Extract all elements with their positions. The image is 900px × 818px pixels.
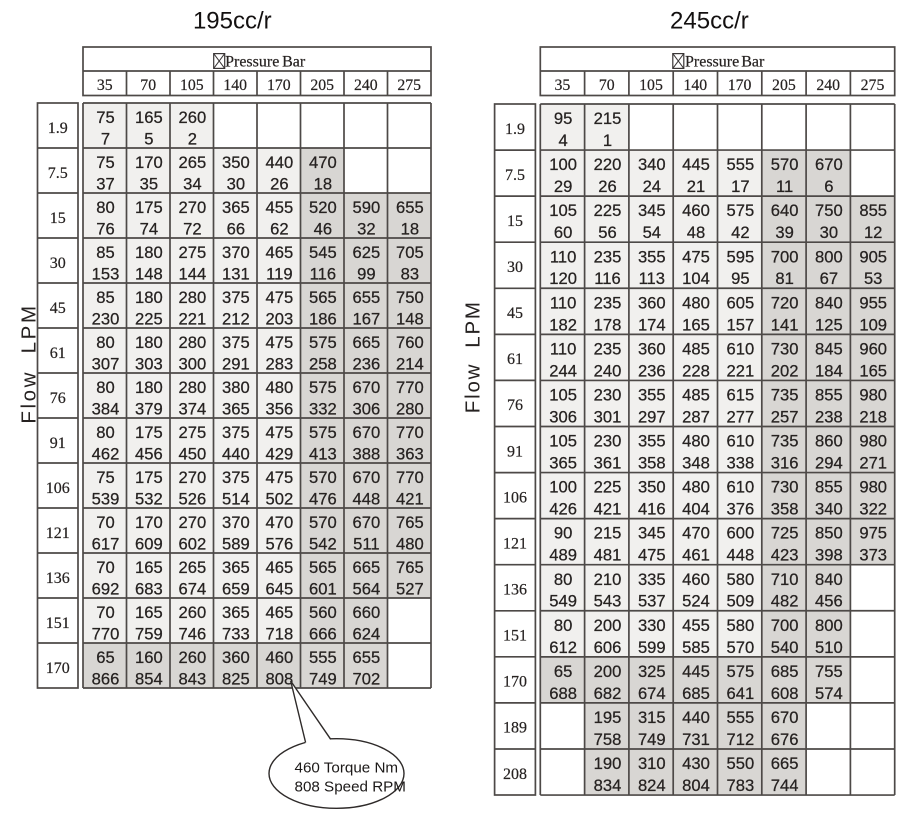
svg-text:365: 365 (549, 454, 577, 473)
svg-text:674: 674 (638, 684, 666, 703)
svg-text:840: 840 (815, 293, 843, 312)
svg-text:35: 35 (97, 77, 113, 94)
svg-text:960: 960 (859, 340, 887, 359)
svg-text:665: 665 (353, 558, 381, 577)
svg-text:280: 280 (179, 378, 207, 397)
svg-text:361: 361 (594, 454, 622, 473)
svg-text:800: 800 (815, 616, 843, 635)
svg-text:375: 375 (222, 423, 250, 442)
svg-text:178: 178 (594, 315, 622, 334)
svg-text:450: 450 (179, 445, 207, 464)
svg-text:606: 606 (594, 638, 622, 657)
svg-text:855: 855 (815, 386, 843, 405)
svg-text:670: 670 (353, 378, 381, 397)
svg-text:80: 80 (554, 570, 572, 589)
svg-text:136: 136 (503, 582, 527, 599)
svg-text:610: 610 (727, 340, 755, 359)
svg-text:448: 448 (727, 546, 755, 565)
svg-text:555: 555 (309, 648, 337, 667)
svg-text:80: 80 (554, 616, 572, 635)
svg-text:602: 602 (179, 535, 207, 554)
svg-text:475: 475 (682, 247, 710, 266)
svg-text:570: 570 (771, 155, 799, 174)
svg-text:609: 609 (135, 535, 163, 554)
svg-text:590: 590 (353, 198, 381, 217)
svg-text:480: 480 (682, 432, 710, 451)
svg-text:1.9: 1.9 (48, 120, 68, 137)
svg-text:15: 15 (507, 213, 523, 230)
svg-text:301: 301 (594, 407, 622, 426)
svg-text:151: 151 (503, 628, 527, 645)
svg-text:640: 640 (771, 201, 799, 220)
svg-text:46: 46 (314, 220, 332, 239)
svg-text:240: 240 (594, 361, 622, 380)
svg-text:804: 804 (682, 776, 710, 795)
svg-text:70: 70 (96, 603, 114, 622)
svg-text:35: 35 (140, 175, 158, 194)
svg-text:76: 76 (507, 397, 523, 414)
svg-text:445: 445 (682, 662, 710, 681)
svg-text:18: 18 (314, 175, 332, 194)
svg-text:685: 685 (682, 684, 710, 703)
svg-text:7: 7 (101, 130, 110, 149)
svg-text:589: 589 (222, 535, 250, 554)
svg-text:845: 845 (815, 340, 843, 359)
svg-text:388: 388 (353, 445, 381, 464)
svg-text:244: 244 (549, 361, 577, 380)
svg-text:34: 34 (183, 175, 201, 194)
svg-text:1: 1 (603, 131, 612, 150)
svg-text:45: 45 (507, 305, 523, 322)
svg-text:110: 110 (550, 340, 576, 359)
svg-text:5: 5 (144, 130, 153, 149)
svg-text:60: 60 (554, 223, 572, 242)
svg-text:476: 476 (309, 490, 337, 509)
svg-text:106: 106 (503, 489, 527, 506)
svg-text:462: 462 (92, 445, 120, 464)
svg-text:550: 550 (727, 754, 755, 773)
svg-text:75: 75 (96, 153, 114, 172)
svg-text:655: 655 (353, 288, 381, 307)
svg-text:121: 121 (503, 535, 527, 552)
svg-text:542: 542 (309, 535, 337, 554)
svg-text:700: 700 (771, 247, 799, 266)
svg-text:575: 575 (309, 378, 337, 397)
svg-text:624: 624 (353, 625, 381, 644)
svg-text:575: 575 (309, 423, 337, 442)
svg-text:980: 980 (859, 432, 887, 451)
svg-text:659: 659 (222, 580, 250, 599)
svg-text:113: 113 (639, 269, 665, 288)
svg-text:676: 676 (771, 730, 799, 749)
svg-text:70: 70 (96, 513, 114, 532)
svg-text:265: 265 (179, 153, 207, 172)
svg-text:730: 730 (771, 478, 799, 497)
svg-text:475: 475 (266, 333, 294, 352)
svg-text:355: 355 (638, 432, 666, 451)
svg-text:783: 783 (727, 776, 755, 795)
svg-text:62: 62 (270, 220, 288, 239)
svg-text:275: 275 (179, 423, 207, 442)
svg-text:580: 580 (727, 570, 755, 589)
svg-text:310: 310 (638, 754, 666, 773)
svg-text:345: 345 (638, 524, 666, 543)
svg-text:666: 666 (309, 625, 337, 644)
svg-text:235: 235 (594, 340, 622, 359)
svg-text:749: 749 (638, 730, 666, 749)
svg-text:67: 67 (820, 269, 838, 288)
svg-text:600: 600 (727, 524, 755, 543)
svg-text:470: 470 (682, 524, 710, 543)
svg-text:26: 26 (270, 175, 288, 194)
svg-text:480: 480 (682, 478, 710, 497)
svg-text:808: 808 (266, 670, 294, 689)
svg-text:30: 30 (50, 255, 66, 272)
svg-text:685: 685 (771, 662, 799, 681)
svg-text:335: 335 (638, 570, 666, 589)
svg-text:140: 140 (223, 77, 247, 94)
svg-text:56: 56 (598, 223, 616, 242)
svg-text:80: 80 (96, 423, 114, 442)
svg-text:360: 360 (222, 648, 250, 667)
svg-text:116: 116 (594, 269, 620, 288)
svg-text:167: 167 (353, 310, 381, 329)
svg-text:370: 370 (222, 513, 250, 532)
svg-text:360: 360 (638, 340, 666, 359)
svg-text:765: 765 (396, 513, 424, 532)
svg-text:203: 203 (266, 310, 294, 329)
svg-text:610: 610 (727, 432, 755, 451)
svg-text:165: 165 (135, 603, 163, 622)
svg-text:215: 215 (594, 524, 622, 543)
svg-text:315: 315 (638, 708, 666, 727)
svg-text:32: 32 (357, 220, 375, 239)
svg-text:549: 549 (549, 592, 577, 611)
svg-text:85: 85 (96, 288, 114, 307)
svg-text:104: 104 (682, 269, 710, 288)
svg-text:373: 373 (859, 546, 887, 565)
svg-text:770: 770 (92, 625, 120, 644)
svg-text:245cc/r: 245cc/r (670, 7, 749, 34)
svg-text:576: 576 (266, 535, 294, 554)
svg-text:455: 455 (266, 198, 294, 217)
svg-text:230: 230 (92, 310, 120, 329)
svg-text:350: 350 (638, 478, 666, 497)
svg-text:570: 570 (309, 513, 337, 532)
svg-text:280: 280 (396, 400, 424, 419)
svg-text:413: 413 (309, 445, 337, 464)
svg-text:165: 165 (682, 315, 710, 334)
svg-text:460: 460 (682, 570, 710, 589)
svg-text:365: 365 (222, 198, 250, 217)
svg-text:175: 175 (135, 468, 163, 487)
svg-text:520: 520 (309, 198, 337, 217)
svg-text:585: 585 (682, 638, 710, 657)
svg-text:460: 460 (682, 201, 710, 220)
svg-text:670: 670 (353, 513, 381, 532)
svg-text:65: 65 (554, 662, 572, 681)
svg-text:475: 475 (266, 423, 294, 442)
svg-text:730: 730 (771, 340, 799, 359)
svg-text:235: 235 (594, 247, 622, 266)
svg-text:287: 287 (682, 407, 710, 426)
svg-text:429: 429 (266, 445, 294, 464)
svg-text:564: 564 (353, 580, 381, 599)
svg-text:Flow LPM: Flow LPM (462, 300, 485, 413)
svg-text:99: 99 (357, 265, 375, 284)
svg-text:4: 4 (558, 131, 567, 150)
svg-text:345: 345 (638, 201, 666, 220)
svg-text:54: 54 (643, 223, 661, 242)
svg-text:688: 688 (549, 684, 577, 703)
svg-text:136: 136 (46, 570, 70, 587)
svg-text:655: 655 (396, 198, 424, 217)
svg-text:291: 291 (222, 355, 250, 374)
svg-text:854: 854 (135, 670, 163, 689)
svg-text:61: 61 (507, 351, 523, 368)
svg-text:140: 140 (683, 77, 707, 94)
svg-text:105: 105 (549, 432, 577, 451)
svg-text:379: 379 (135, 400, 163, 419)
svg-text:421: 421 (396, 490, 424, 509)
svg-text:165: 165 (135, 108, 163, 127)
svg-text:17: 17 (731, 177, 749, 196)
svg-text:746: 746 (179, 625, 207, 644)
svg-text:612: 612 (549, 638, 577, 657)
svg-text:24: 24 (643, 177, 661, 196)
svg-text:375: 375 (222, 333, 250, 352)
svg-text:270: 270 (179, 513, 207, 532)
svg-text:670: 670 (815, 155, 843, 174)
svg-text:532: 532 (135, 490, 163, 509)
svg-text:170: 170 (267, 77, 291, 94)
svg-text:855: 855 (859, 201, 887, 220)
svg-text:151: 151 (46, 615, 70, 632)
svg-text:100: 100 (549, 478, 577, 497)
svg-text:570: 570 (309, 468, 337, 487)
svg-text:445: 445 (682, 155, 710, 174)
svg-text:975: 975 (859, 524, 887, 543)
svg-text:470: 470 (309, 153, 337, 172)
svg-text:543: 543 (594, 592, 622, 611)
svg-text:91: 91 (507, 443, 523, 460)
svg-text:225: 225 (594, 201, 622, 220)
svg-text:225: 225 (135, 310, 163, 329)
svg-text:527: 527 (396, 580, 424, 599)
svg-text:283: 283 (266, 355, 294, 374)
svg-text:338: 338 (727, 454, 755, 473)
svg-text:189: 189 (503, 720, 527, 737)
svg-text:760: 760 (396, 333, 424, 352)
svg-text:502: 502 (266, 490, 294, 509)
svg-text:294: 294 (815, 454, 843, 473)
svg-text:144: 144 (179, 265, 207, 284)
svg-text:105: 105 (549, 201, 577, 220)
svg-text:119: 119 (266, 265, 292, 284)
svg-text:360: 360 (638, 293, 666, 312)
svg-text:275: 275 (397, 77, 421, 94)
svg-text:106: 106 (46, 480, 70, 497)
svg-text:416: 416 (638, 500, 666, 519)
svg-text:131: 131 (222, 265, 250, 284)
svg-text:430: 430 (682, 754, 710, 773)
svg-text:235: 235 (594, 293, 622, 312)
svg-text:455: 455 (682, 616, 710, 635)
svg-text:322: 322 (859, 500, 887, 519)
svg-text:855: 855 (815, 478, 843, 497)
svg-text:750: 750 (815, 201, 843, 220)
svg-text:509: 509 (727, 592, 755, 611)
svg-text:105: 105 (180, 77, 204, 94)
svg-text:48: 48 (687, 223, 705, 242)
svg-text:75: 75 (96, 108, 114, 127)
svg-text:355: 355 (638, 247, 666, 266)
svg-text:850: 850 (815, 524, 843, 543)
svg-text:91: 91 (50, 435, 66, 452)
svg-text:Bar: Bar (741, 54, 765, 71)
svg-text:95: 95 (731, 269, 749, 288)
svg-text:109: 109 (859, 315, 887, 334)
svg-text:218: 218 (859, 407, 887, 426)
svg-text:165: 165 (135, 558, 163, 577)
svg-text:200: 200 (594, 616, 622, 635)
svg-text:21: 21 (687, 177, 705, 196)
svg-text:180: 180 (135, 378, 163, 397)
svg-text:116: 116 (310, 265, 336, 284)
svg-text:306: 306 (353, 400, 381, 419)
svg-text:182: 182 (549, 315, 577, 334)
svg-text:710: 710 (771, 570, 799, 589)
svg-text:175: 175 (135, 423, 163, 442)
svg-text:440: 440 (682, 708, 710, 727)
svg-text:120: 120 (549, 269, 577, 288)
svg-text:240: 240 (354, 77, 378, 94)
svg-text:575: 575 (727, 201, 755, 220)
svg-text:540: 540 (771, 638, 799, 657)
svg-text:480: 480 (396, 535, 424, 554)
svg-text:475: 475 (638, 546, 666, 565)
svg-text:210: 210 (594, 570, 622, 589)
svg-text:731: 731 (682, 730, 710, 749)
svg-text:236: 236 (353, 355, 381, 374)
svg-text:348: 348 (682, 454, 710, 473)
svg-text:800: 800 (815, 247, 843, 266)
svg-text:110: 110 (550, 247, 576, 266)
svg-text:214: 214 (396, 355, 424, 374)
svg-text:670: 670 (771, 708, 799, 727)
svg-text:42: 42 (731, 223, 749, 242)
svg-text:692: 692 (92, 580, 120, 599)
svg-text:825: 825 (222, 670, 250, 689)
svg-text:539: 539 (92, 490, 120, 509)
svg-text:759: 759 (135, 625, 163, 644)
svg-text:65: 65 (96, 648, 114, 667)
svg-text:840: 840 (815, 570, 843, 589)
svg-text:2: 2 (188, 130, 197, 149)
svg-text:275: 275 (179, 243, 207, 262)
svg-text:380: 380 (222, 378, 250, 397)
svg-text:70: 70 (96, 558, 114, 577)
svg-text:735: 735 (771, 432, 799, 451)
svg-text:53: 53 (864, 269, 882, 288)
svg-text:170: 170 (135, 513, 163, 532)
svg-text:80: 80 (96, 198, 114, 217)
svg-text:866: 866 (92, 670, 120, 689)
svg-text:720: 720 (771, 293, 799, 312)
svg-text:440: 440 (266, 153, 294, 172)
svg-text:148: 148 (135, 265, 163, 284)
svg-text:480: 480 (266, 378, 294, 397)
svg-text:11: 11 (776, 177, 793, 196)
svg-text:670: 670 (353, 423, 381, 442)
svg-text:537: 537 (638, 592, 666, 611)
svg-text:460 Torque Nm: 460 Torque Nm (295, 759, 399, 776)
svg-text:157: 157 (727, 315, 755, 334)
svg-text:718: 718 (266, 625, 294, 644)
svg-text:121: 121 (46, 525, 70, 542)
svg-text:605: 605 (727, 293, 755, 312)
svg-text:860: 860 (815, 432, 843, 451)
svg-text:45: 45 (50, 300, 66, 317)
svg-text:270: 270 (179, 468, 207, 487)
svg-text:384: 384 (92, 400, 120, 419)
svg-text:363: 363 (396, 445, 424, 464)
svg-text:Bar: Bar (282, 54, 306, 71)
svg-text:356: 356 (266, 400, 294, 419)
svg-text:200: 200 (594, 662, 622, 681)
svg-text:665: 665 (771, 754, 799, 773)
svg-text:26: 26 (598, 177, 616, 196)
svg-text:456: 456 (815, 592, 843, 611)
svg-text:260: 260 (179, 648, 207, 667)
svg-text:575: 575 (727, 662, 755, 681)
svg-text:625: 625 (353, 243, 381, 262)
svg-text:Pressure: Pressure (225, 54, 279, 71)
svg-text:370: 370 (222, 243, 250, 262)
svg-text:511: 511 (353, 535, 379, 554)
svg-text:615: 615 (727, 386, 755, 405)
svg-text:808 Speed RPM: 808 Speed RPM (295, 778, 406, 795)
svg-text:76: 76 (50, 390, 66, 407)
svg-text:202: 202 (771, 361, 799, 380)
svg-text:141: 141 (771, 315, 799, 334)
svg-text:461: 461 (682, 546, 710, 565)
svg-text:1.9: 1.9 (505, 121, 525, 138)
svg-text:332: 332 (309, 400, 337, 419)
svg-text:170: 170 (46, 660, 70, 677)
svg-text:824: 824 (638, 776, 666, 795)
svg-text:905: 905 (859, 247, 887, 266)
svg-text:221: 221 (727, 361, 755, 380)
svg-text:489: 489 (549, 546, 577, 565)
svg-text:270: 270 (179, 198, 207, 217)
svg-text:358: 358 (771, 500, 799, 519)
svg-text:195: 195 (594, 708, 622, 727)
svg-text:702: 702 (353, 670, 381, 689)
svg-text:180: 180 (135, 288, 163, 307)
svg-text:165: 165 (859, 361, 887, 380)
svg-text:755: 755 (815, 662, 843, 681)
svg-text:725: 725 (771, 524, 799, 543)
svg-text:236: 236 (638, 361, 666, 380)
svg-text:440: 440 (222, 445, 250, 464)
svg-text:456: 456 (135, 445, 163, 464)
svg-text:398: 398 (815, 546, 843, 565)
svg-text:843: 843 (179, 670, 207, 689)
svg-text:6: 6 (824, 177, 833, 196)
svg-text:480: 480 (682, 293, 710, 312)
svg-text:758: 758 (594, 730, 622, 749)
